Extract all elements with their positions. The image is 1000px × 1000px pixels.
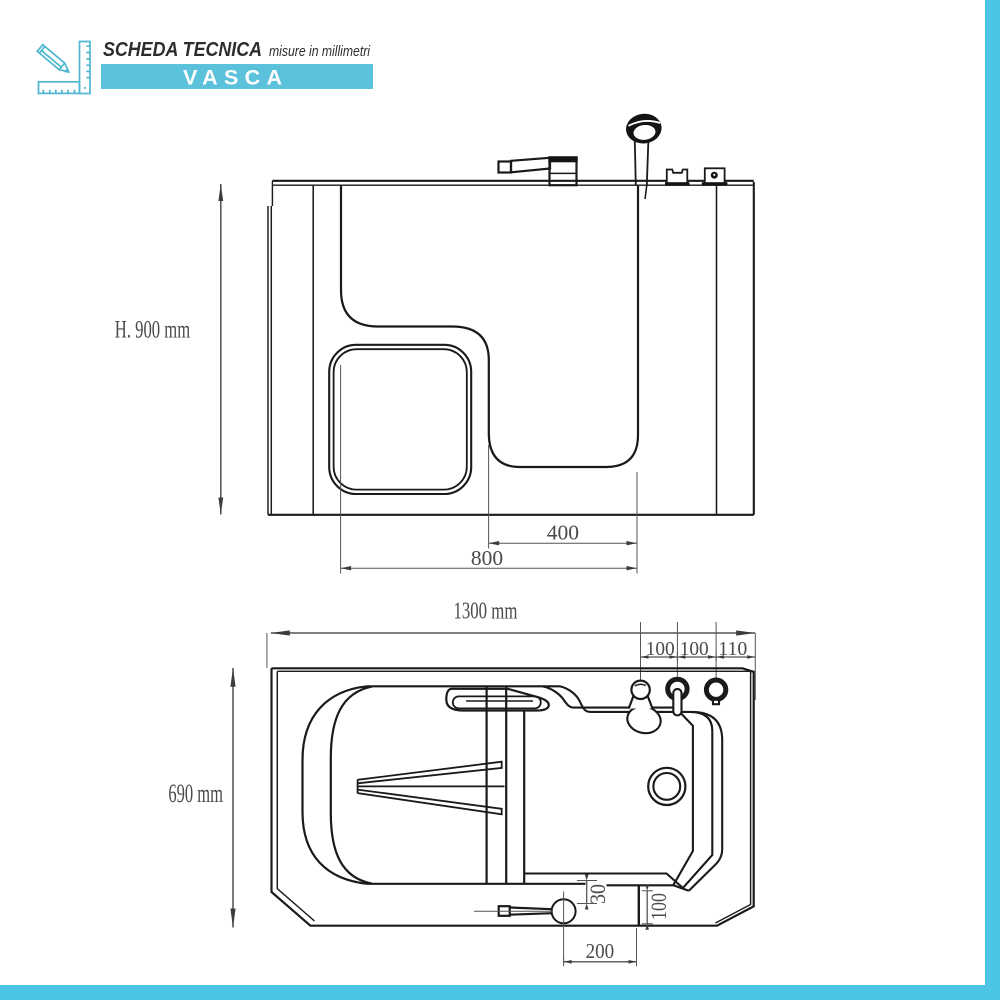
svg-text:200: 200	[586, 939, 615, 963]
svg-text:30: 30	[585, 884, 610, 904]
svg-text:400: 400	[547, 521, 579, 545]
svg-text:H. 900 mm: H. 900 mm	[115, 314, 191, 343]
svg-text:100: 100	[646, 893, 671, 920]
svg-text:690 mm: 690 mm	[168, 779, 223, 808]
svg-text:110: 110	[718, 638, 747, 660]
svg-text:1300 mm: 1300 mm	[454, 598, 518, 625]
svg-text:100: 100	[680, 638, 709, 660]
svg-text:100: 100	[646, 638, 675, 660]
svg-text:misure in millimetri: misure in millimetri	[269, 43, 371, 60]
svg-text:SCHEDA TECNICA: SCHEDA TECNICA	[103, 39, 262, 61]
svg-text:800: 800	[471, 546, 503, 570]
